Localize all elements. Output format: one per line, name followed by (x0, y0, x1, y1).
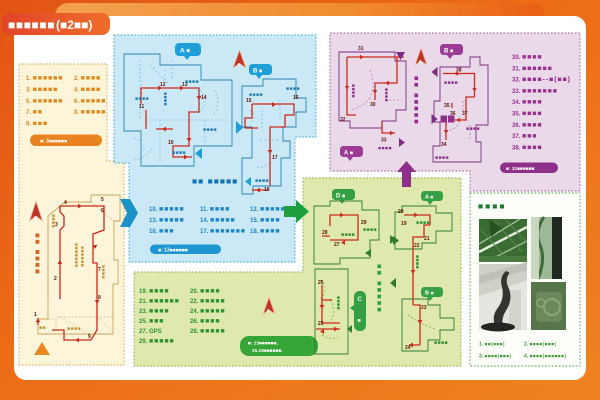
svg-text:2: 2 (54, 276, 57, 282)
svg-text:20: 20 (398, 209, 404, 215)
svg-text:4: 4 (64, 200, 67, 206)
svg-text:18: 18 (264, 187, 270, 193)
svg-text:■■■■: ■■■■ (444, 80, 458, 86)
svg-text:■: 3■■■■■■: ■: 3■■■■■■ (40, 139, 67, 145)
svg-text:26. ■■■■: 26. ■■■■ (190, 318, 221, 325)
svg-text:A ■: A ■ (344, 151, 353, 157)
svg-text:■■ ■■■■■: ■■ ■■■■■ (412, 76, 421, 126)
svg-text:10. ■■■■■: 10. ■■■■■ (149, 206, 185, 213)
svg-text:1. ■■■■■■: 1. ■■■■■■ (26, 75, 63, 82)
svg-text:■■■■■■: ■■■■■■ (8, 18, 55, 32)
svg-text:26: 26 (318, 280, 324, 286)
svg-text:B ■: B ■ (444, 49, 453, 55)
svg-text:■: ■ (358, 318, 361, 324)
svg-text:C: C (358, 297, 363, 303)
svg-text:21: 21 (424, 236, 430, 242)
svg-text:1: 1 (34, 312, 37, 318)
svg-text:■: 13■■■■■■: ■: 13■■■■■■ (158, 248, 188, 254)
svg-text:■■■■: ■■■■ (416, 220, 430, 226)
svg-text:22. ■■■■■: 22. ■■■■■ (190, 298, 226, 305)
svg-text:4. ■■■■: 4. ■■■■ (74, 87, 101, 94)
svg-text:17: 17 (272, 155, 278, 161)
svg-text:■■■■: ■■■■ (135, 96, 149, 102)
svg-text:30: 30 (370, 102, 376, 108)
svg-text:B ■: B ■ (253, 69, 262, 75)
svg-text:15: 15 (246, 98, 252, 104)
svg-text:33. ■■■■■■■: 33. ■■■■■■■ (512, 88, 558, 95)
svg-text:21. ■■■■■■: 21. ■■■■■■ (139, 298, 180, 305)
svg-text:2. ■■■■: 2. ■■■■ (74, 75, 101, 82)
svg-text:29: 29 (361, 220, 367, 226)
svg-text:■■■■: ■■■■ (249, 92, 263, 98)
svg-text:9. ■■■: 9. ■■■ (26, 121, 48, 128)
svg-text:17. ■■■■■■■: 17. ■■■■■■■ (200, 228, 246, 235)
svg-text:28: 28 (322, 230, 328, 236)
svg-text:■■■■■■■: ■■■■■■■ (73, 243, 79, 268)
svg-text:D ■: D ■ (336, 194, 345, 200)
svg-text:14: 14 (201, 95, 207, 101)
svg-text:■: 31■■■■■■: ■: 31■■■■■■ (506, 166, 535, 172)
svg-text:31. ■■■■■■: 31. ■■■■■■ (512, 65, 553, 72)
svg-text:■■■■: ■■■■ (100, 265, 106, 279)
svg-text:■■■■: ■■■■ (378, 146, 392, 152)
svg-text:A ■: A ■ (180, 48, 190, 55)
svg-text:■■ ■■■■■: ■■ ■■■■■ (192, 176, 238, 186)
svg-text:38. ■■■■: 38. ■■■■ (512, 144, 543, 151)
svg-text:8. ■■■■■: 8. ■■■■■ (74, 109, 106, 116)
svg-text:■■■■: ■■■■ (478, 201, 507, 211)
svg-text:■■■■: ■■■■ (203, 127, 217, 133)
svg-text:■■■■: ■■■■ (435, 155, 449, 161)
svg-text:25.26■■■■■■.: 25.26■■■■■■. (252, 348, 283, 354)
svg-text:A ■: A ■ (425, 195, 433, 201)
svg-text:■■■■: ■■■■ (50, 214, 56, 228)
svg-text:31: 31 (358, 46, 364, 52)
svg-text:18. ■■■■: 18. ■■■■ (250, 228, 281, 235)
svg-text:35: 35 (444, 103, 450, 109)
svg-text:15. ■■■■: 15. ■■■■ (250, 217, 281, 224)
svg-text:19: 19 (401, 221, 407, 227)
svg-text:6: 6 (101, 208, 104, 214)
svg-text:10: 10 (168, 140, 174, 146)
svg-text:■■■■: ■■■■ (335, 296, 341, 310)
svg-text:12. ■■■■■: 12. ■■■■■ (250, 206, 286, 213)
svg-text:14. ■■■■■: 14. ■■■■■ (200, 217, 236, 224)
svg-text:8: 8 (98, 295, 101, 301)
svg-text:5. ■■■■■■: 5. ■■■■■■ (26, 98, 63, 105)
svg-text:23: 23 (421, 305, 427, 311)
svg-text:■■ ■■■■: ■■ ■■■■ (33, 233, 42, 275)
svg-text:9: 9 (88, 334, 91, 340)
svg-text:7. ■■: 7. ■■ (26, 109, 43, 116)
svg-text:30. ■■■■: 30. ■■■■ (512, 54, 543, 61)
svg-text:■■■■: ■■■■ (414, 255, 420, 269)
svg-text:34. ■■■■: 34. ■■■■ (512, 99, 543, 106)
svg-text:6. ■■■■■: 6. ■■■■■ (74, 98, 106, 105)
svg-text:36. ■■■■: 36. ■■■■ (512, 122, 543, 129)
svg-text:11. ■■■■: 11. ■■■■ (200, 206, 230, 213)
svg-text:27. GPS: 27. GPS (139, 329, 162, 335)
svg-text:37: 37 (462, 111, 468, 117)
svg-text:13. ■■■■■: 13. ■■■■■ (149, 217, 185, 224)
svg-text:37. ■■■: 37. ■■■ (512, 133, 537, 140)
svg-text:■■■■: ■■■■ (255, 178, 269, 184)
svg-text:■■■■: ■■■■ (341, 232, 355, 238)
svg-text:16. ■■■: 16. ■■■ (149, 228, 174, 235)
svg-text:24. ■■■■■: 24. ■■■■■ (190, 308, 226, 315)
svg-text:11: 11 (139, 104, 145, 110)
svg-text:16: 16 (293, 95, 299, 101)
svg-text:■■■■: ■■■■ (350, 84, 356, 98)
svg-text:23. ■■■■: 23. ■■■■ (139, 308, 170, 315)
svg-text:19. ■■■■: 19. ■■■■ (139, 288, 170, 295)
svg-text:■■■■: ■■■■ (434, 340, 448, 346)
svg-text:32. ■■■■--■(■■): 32. ■■■■--■(■■) (512, 77, 571, 84)
svg-text:12: 12 (160, 82, 166, 88)
svg-text:25: 25 (318, 321, 324, 327)
svg-text:■■■■: ■■■■ (383, 88, 389, 102)
svg-text:■■■■: ■■■■ (67, 326, 81, 332)
svg-text:(■2■■): (■2■■) (56, 18, 92, 32)
svg-text:■■■■: ■■■■ (172, 150, 186, 156)
svg-text:3. ■■■■■: 3. ■■■■■ (26, 87, 58, 94)
svg-text:■■■■: ■■■■ (466, 126, 480, 132)
svg-text:■: 23■■■■■■,: ■: 23■■■■■■, (248, 341, 279, 347)
svg-text:■■■■: ■■■■ (286, 86, 300, 92)
svg-text:29. ■■■■■: 29. ■■■■■ (139, 338, 175, 345)
svg-text:■■: ■■ (39, 325, 46, 331)
svg-text:B ■: B ■ (425, 291, 434, 297)
svg-text:34: 34 (441, 142, 447, 148)
svg-text:33: 33 (381, 138, 387, 144)
svg-text:22: 22 (414, 243, 420, 249)
svg-text:25. ■■■: 25. ■■■ (139, 318, 164, 325)
svg-text:■■ ■■■■■: ■■ ■■■■■ (375, 264, 384, 314)
svg-text:27: 27 (334, 242, 340, 248)
svg-text:32: 32 (340, 117, 346, 123)
svg-text:35. ■■■■: 35. ■■■■ (512, 111, 543, 118)
svg-text:20. ■■■■: 20. ■■■■ (190, 288, 221, 295)
svg-text:28. ■■■■■: 28. ■■■■■ (190, 328, 226, 335)
svg-text:38: 38 (456, 68, 462, 74)
svg-text:24: 24 (405, 345, 411, 351)
svg-text:■■■■■■: ■■■■■■ (79, 246, 85, 267)
svg-text:5: 5 (101, 197, 104, 203)
svg-text:■■■■: ■■■■ (162, 92, 168, 106)
svg-text:■■■■: ■■■■ (185, 79, 199, 85)
svg-text:■■■■: ■■■■ (363, 227, 377, 233)
